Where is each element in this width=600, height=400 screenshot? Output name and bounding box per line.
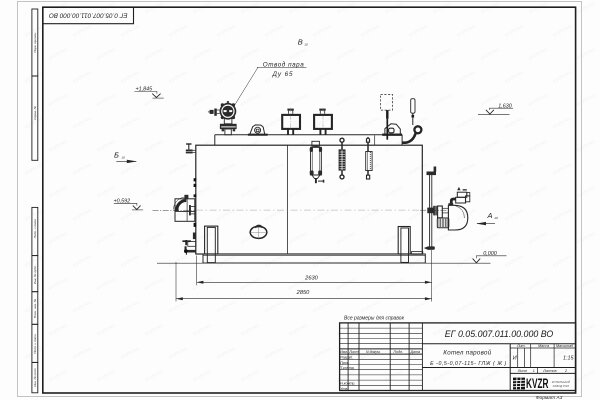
svg-text:KVZR.RU: KVZR.RU bbox=[288, 322, 309, 336]
svg-text:KVZR.RU: KVZR.RU bbox=[288, 46, 309, 60]
svg-text:KVZR.RU: KVZR.RU bbox=[528, 92, 549, 106]
svg-text:Масштаб: Масштаб bbox=[556, 344, 574, 348]
svg-text:1: 1 bbox=[533, 369, 535, 373]
svg-text:KVZR.RU: KVZR.RU bbox=[552, 115, 573, 129]
svg-text:KVZR.RU: KVZR.RU bbox=[96, 322, 117, 336]
svg-text:KVZR.RU: KVZR.RU bbox=[528, 276, 549, 290]
svg-text:KVZR.RU: KVZR.RU bbox=[312, 299, 333, 313]
svg-text:KVZR.RU: KVZR.RU bbox=[384, 368, 405, 382]
svg-text:KVZR.RU: KVZR.RU bbox=[96, 184, 117, 198]
svg-text:KVZR.RU: KVZR.RU bbox=[48, 368, 69, 382]
svg-text:KVZR.RU: KVZR.RU bbox=[240, 276, 261, 290]
svg-text:Лит.: Лит. bbox=[516, 344, 526, 348]
svg-text:KVZR.RU: KVZR.RU bbox=[288, 368, 309, 382]
svg-text:KVZR.RU: KVZR.RU bbox=[576, 368, 597, 382]
svg-text:KVZR.RU: KVZR.RU bbox=[192, 46, 213, 60]
svg-text:KVZR.RU: KVZR.RU bbox=[120, 253, 141, 267]
svg-text:KVZR.RU: KVZR.RU bbox=[264, 207, 285, 221]
svg-text:KVZR.RU: KVZR.RU bbox=[528, 230, 549, 244]
svg-text:KVZR.RU: KVZR.RU bbox=[408, 69, 429, 83]
svg-text:KVZR.RU: KVZR.RU bbox=[48, 184, 69, 198]
svg-text:KVZR.RU: KVZR.RU bbox=[504, 299, 525, 313]
svg-text:KVZR.RU: KVZR.RU bbox=[432, 138, 453, 152]
svg-text:Пров.: Пров. bbox=[340, 361, 349, 365]
svg-text:KVZR.RU: KVZR.RU bbox=[144, 92, 165, 106]
svg-text:KVZR.RU: KVZR.RU bbox=[216, 207, 237, 221]
svg-text:KVZR.RU: KVZR.RU bbox=[120, 69, 141, 83]
svg-text:KVZR.RU: KVZR.RU bbox=[552, 299, 573, 313]
svg-text:KVZR.RU: KVZR.RU bbox=[360, 299, 381, 313]
svg-text:Дата: Дата bbox=[410, 350, 420, 354]
svg-text:KVZR.RU: KVZR.RU bbox=[456, 253, 477, 267]
svg-text:2630: 2630 bbox=[304, 276, 318, 282]
svg-text:10: 10 bbox=[304, 42, 308, 46]
svg-text:+1,845: +1,845 bbox=[135, 86, 153, 92]
svg-text:KVZR.RU: KVZR.RU bbox=[528, 184, 549, 198]
svg-text:Лист: Лист bbox=[517, 369, 528, 373]
svg-text:KVZR.RU: KVZR.RU bbox=[552, 161, 573, 175]
svg-text:KVZR.RU: KVZR.RU bbox=[120, 345, 141, 359]
svg-text:KVZR.RU: KVZR.RU bbox=[504, 23, 525, 37]
svg-text:KVZR.RU: KVZR.RU bbox=[24, 69, 45, 83]
svg-text:KVZR.RU: KVZR.RU bbox=[144, 138, 165, 152]
svg-text:KVZR.RU: KVZR.RU bbox=[168, 161, 189, 175]
svg-text:KVZR.RU: KVZR.RU bbox=[480, 276, 501, 290]
svg-text:KVZR.RU: KVZR.RU bbox=[336, 92, 357, 106]
svg-text:KVZR.RU: KVZR.RU bbox=[408, 299, 429, 313]
svg-text:KVZR.RU: KVZR.RU bbox=[72, 115, 93, 129]
svg-text:KVZR.RU: KVZR.RU bbox=[408, 23, 429, 37]
svg-text:KVZR.RU: KVZR.RU bbox=[456, 299, 477, 313]
svg-text:KVZR.RU: KVZR.RU bbox=[384, 230, 405, 244]
svg-text:KVZR.RU: KVZR.RU bbox=[240, 368, 261, 382]
svg-text:KVZR.RU: KVZR.RU bbox=[336, 184, 357, 198]
svg-text:KVZR.RU: KVZR.RU bbox=[96, 276, 117, 290]
svg-text:KVZR.RU: KVZR.RU bbox=[360, 207, 381, 221]
svg-text:KVZR.RU: KVZR.RU bbox=[384, 46, 405, 60]
svg-text:KVZR.RU: KVZR.RU bbox=[192, 276, 213, 290]
svg-text:KVZR.RU: KVZR.RU bbox=[384, 92, 405, 106]
svg-text:KVZR.RU: KVZR.RU bbox=[456, 115, 477, 129]
svg-text:KVZR.RU: KVZR.RU bbox=[72, 299, 93, 313]
svg-text:KVZR.RU: KVZR.RU bbox=[144, 46, 165, 60]
svg-text:KVZR.RU: KVZR.RU bbox=[312, 69, 333, 83]
svg-text:KVZR.RU: KVZR.RU bbox=[120, 115, 141, 129]
svg-text:Отвод пара: Отвод пара bbox=[263, 61, 305, 69]
svg-text:KVZR.RU: KVZR.RU bbox=[312, 345, 333, 359]
svg-text:KVZR.RU: KVZR.RU bbox=[72, 253, 93, 267]
svg-text:Инв. № дубл.: Инв. № дубл. bbox=[33, 265, 37, 284]
svg-text:KVZR.RU: KVZR.RU bbox=[384, 276, 405, 290]
svg-text:KVZR.RU: KVZR.RU bbox=[72, 23, 93, 37]
svg-text:KVZR.RU: KVZR.RU bbox=[168, 23, 189, 37]
svg-text:KVZR.RU: KVZR.RU bbox=[552, 69, 573, 83]
svg-text:KVZR.RU: KVZR.RU bbox=[456, 207, 477, 221]
svg-text:KVZR.RU: KVZR.RU bbox=[240, 92, 261, 106]
svg-text:KVZR.RU: KVZR.RU bbox=[408, 207, 429, 221]
svg-text:KVZR.RU: KVZR.RU bbox=[168, 253, 189, 267]
svg-text:Т.контр.: Т.контр. bbox=[340, 366, 355, 370]
svg-text:KVZR.RU: KVZR.RU bbox=[216, 161, 237, 175]
svg-text:Подп. и дата: Подп. и дата bbox=[33, 334, 37, 354]
svg-text:Е -0,5-0,07-115- ГЛЖ ( Ж ): Е -0,5-0,07-115- ГЛЖ ( Ж ) bbox=[430, 361, 507, 367]
svg-text:KVZR.RU: KVZR.RU bbox=[456, 69, 477, 83]
svg-text:KVZR.RU: KVZR.RU bbox=[336, 230, 357, 244]
svg-text:KVZR.RU: KVZR.RU bbox=[576, 46, 597, 60]
svg-text:ЗАВОД РЭП: ЗАВОД РЭП bbox=[553, 384, 570, 388]
svg-text:KVZR.RU: KVZR.RU bbox=[240, 184, 261, 198]
svg-text:KVZR.RU: KVZR.RU bbox=[24, 161, 45, 175]
svg-text:KVZR.RU: KVZR.RU bbox=[360, 69, 381, 83]
svg-text:Н.контр.: Н.контр. bbox=[340, 382, 355, 386]
svg-text:KVZR.RU: KVZR.RU bbox=[96, 92, 117, 106]
svg-text:KVZR.RU: KVZR.RU bbox=[216, 299, 237, 313]
svg-text:KVZR.RU: KVZR.RU bbox=[576, 322, 597, 336]
svg-text:KVZR.RU: KVZR.RU bbox=[576, 92, 597, 106]
svg-text:KVZR.RU: KVZR.RU bbox=[72, 69, 93, 83]
svg-text:1:15: 1:15 bbox=[563, 356, 574, 362]
svg-text:KVZR.RU: KVZR.RU bbox=[144, 322, 165, 336]
svg-text:KVZR.RU: KVZR.RU bbox=[384, 322, 405, 336]
svg-text:KVZR.RU: KVZR.RU bbox=[192, 368, 213, 382]
svg-text:KVZR.RU: KVZR.RU bbox=[120, 299, 141, 313]
svg-text:KVZR.RU: KVZR.RU bbox=[312, 207, 333, 221]
svg-text:Изм.: Изм. bbox=[340, 350, 348, 354]
svg-text:Все размеры для справок: Все размеры для справок bbox=[344, 315, 405, 321]
svg-text:KVZR.RU: KVZR.RU bbox=[48, 230, 69, 244]
svg-text:Масса: Масса bbox=[538, 344, 549, 348]
svg-text:+0,592: +0,592 bbox=[113, 199, 130, 205]
svg-text:KVZR.RU: KVZR.RU bbox=[240, 46, 261, 60]
svg-text:KVZR.RU: KVZR.RU bbox=[504, 207, 525, 221]
svg-text:KVZR.RU: KVZR.RU bbox=[216, 23, 237, 37]
svg-text:KVZR.RU: KVZR.RU bbox=[552, 207, 573, 221]
svg-text:Подп.: Подп. bbox=[394, 350, 404, 354]
svg-text:KVZR.RU: KVZR.RU bbox=[264, 299, 285, 313]
svg-text:Лист: Лист bbox=[348, 350, 358, 354]
svg-text:KVZR.RU: KVZR.RU bbox=[96, 368, 117, 382]
svg-text:KVZR.RU: KVZR.RU bbox=[72, 207, 93, 221]
svg-text:В: В bbox=[298, 37, 303, 46]
svg-text:KVZR.RU: KVZR.RU bbox=[504, 253, 525, 267]
svg-text:KVZR.RU: KVZR.RU bbox=[408, 115, 429, 129]
svg-text:ЕГ 0.05.007.011.00.000 ВО: ЕГ 0.05.007.011.00.000 ВО bbox=[49, 12, 128, 19]
svg-text:Утв.: Утв. bbox=[340, 387, 348, 391]
svg-text:KVZR.RU: KVZR.RU bbox=[168, 299, 189, 313]
svg-text:KVZR.RU: KVZR.RU bbox=[432, 46, 453, 60]
svg-text:KVZR.RU: KVZR.RU bbox=[120, 161, 141, 175]
svg-text:KVZR.RU: KVZR.RU bbox=[168, 69, 189, 83]
svg-text:KVZR.RU: KVZR.RU bbox=[504, 161, 525, 175]
svg-text:ЕГ 0.05.007.011.00.000 ВО: ЕГ 0.05.007.011.00.000 ВО bbox=[445, 329, 554, 340]
svg-text:1,630: 1,630 bbox=[498, 103, 512, 109]
svg-text:KVZR.RU: KVZR.RU bbox=[264, 161, 285, 175]
svg-text:KVZR.RU: KVZR.RU bbox=[120, 207, 141, 221]
svg-text:Б: Б bbox=[114, 151, 119, 160]
svg-text:Справ. №: Справ. № bbox=[33, 105, 37, 120]
svg-text:KVZR.RU: KVZR.RU bbox=[384, 184, 405, 198]
svg-text:Инв. № подл.: Инв. № подл. bbox=[33, 367, 37, 386]
svg-text:KVZR.RU: KVZR.RU bbox=[480, 184, 501, 198]
svg-text:KVZR.RU: KVZR.RU bbox=[144, 368, 165, 382]
svg-text:KVZR.RU: KVZR.RU bbox=[552, 23, 573, 37]
svg-text:KVZR.RU: KVZR.RU bbox=[312, 115, 333, 129]
svg-text:KVZR.RU: KVZR.RU bbox=[576, 276, 597, 290]
svg-text:KVZR.RU: KVZR.RU bbox=[504, 115, 525, 129]
svg-text:KVZR.RU: KVZR.RU bbox=[48, 46, 69, 60]
svg-text:KVZR.RU: KVZR.RU bbox=[48, 92, 69, 106]
svg-text:Ду 65: Ду 65 bbox=[272, 71, 294, 78]
svg-text:Котел паровой: Котел паровой bbox=[443, 350, 492, 357]
svg-text:KVZR.RU: KVZR.RU bbox=[432, 230, 453, 244]
svg-text:KVZR.RU: KVZR.RU bbox=[456, 161, 477, 175]
svg-text:10: 10 bbox=[122, 156, 126, 160]
svg-text:KVZR.RU: KVZR.RU bbox=[360, 115, 381, 129]
svg-text:KVZR.RU: KVZR.RU bbox=[576, 230, 597, 244]
svg-text:KVZR.RU: KVZR.RU bbox=[480, 138, 501, 152]
svg-text:KVZR.RU: KVZR.RU bbox=[96, 230, 117, 244]
svg-text:KVZR.RU: KVZR.RU bbox=[264, 345, 285, 359]
svg-text:Формат А3: Формат А3 bbox=[536, 395, 563, 400]
svg-text:KVZR.RU: KVZR.RU bbox=[432, 184, 453, 198]
svg-text:N докум.: N докум. bbox=[366, 350, 381, 354]
svg-text:KVZR.RU: KVZR.RU bbox=[432, 368, 453, 382]
svg-text:KVZR.RU: KVZR.RU bbox=[120, 23, 141, 37]
svg-text:Перв. примен.: Перв. примен. bbox=[33, 32, 37, 53]
svg-text:KVZR.RU: KVZR.RU bbox=[312, 23, 333, 37]
svg-text:KVZR.RU: KVZR.RU bbox=[552, 253, 573, 267]
svg-text:KVZR.RU: KVZR.RU bbox=[456, 23, 477, 37]
svg-text:KVZR.RU: KVZR.RU bbox=[72, 345, 93, 359]
svg-text:KVZR.RU: KVZR.RU bbox=[576, 184, 597, 198]
svg-text:KVZR.RU: KVZR.RU bbox=[432, 92, 453, 106]
svg-text:KVZR.RU: KVZR.RU bbox=[216, 345, 237, 359]
svg-text:Разраб.: Разраб. bbox=[340, 356, 353, 360]
svg-text:KVZR.RU: KVZR.RU bbox=[504, 69, 525, 83]
svg-text:2: 2 bbox=[564, 369, 567, 373]
svg-text:KVZR.RU: KVZR.RU bbox=[168, 345, 189, 359]
svg-text:KVZR.RU: KVZR.RU bbox=[216, 69, 237, 83]
svg-text:Подп. и дата: Подп. и дата bbox=[33, 219, 37, 239]
svg-text:KVZR.RU: KVZR.RU bbox=[264, 23, 285, 37]
svg-text:KVZR.RU: KVZR.RU bbox=[48, 276, 69, 290]
svg-text:KVZR.RU: KVZR.RU bbox=[240, 322, 261, 336]
svg-text:KVZR.RU: KVZR.RU bbox=[144, 276, 165, 290]
svg-text:И: И bbox=[513, 355, 517, 361]
svg-text:KVZR: KVZR bbox=[526, 376, 549, 391]
svg-text:KVZR.RU: KVZR.RU bbox=[336, 46, 357, 60]
svg-text:KVZR.RU: KVZR.RU bbox=[288, 92, 309, 106]
svg-text:KVZR.RU: KVZR.RU bbox=[192, 92, 213, 106]
svg-text:20: 20 bbox=[494, 216, 499, 220]
svg-text:KVZR.RU: KVZR.RU bbox=[312, 161, 333, 175]
svg-text:KVZR.RU: KVZR.RU bbox=[72, 161, 93, 175]
svg-text:Листов: Листов bbox=[542, 369, 557, 373]
svg-text:KVZR.RU: KVZR.RU bbox=[48, 322, 69, 336]
svg-text:KVZR.RU: KVZR.RU bbox=[576, 138, 597, 152]
svg-text:KVZR.RU: KVZR.RU bbox=[480, 368, 501, 382]
svg-text:Взам. инв. №: Взам. инв. № bbox=[33, 298, 37, 318]
svg-text:KVZR.RU: KVZR.RU bbox=[96, 46, 117, 60]
svg-text:KVZR.RU: KVZR.RU bbox=[144, 184, 165, 198]
svg-text:KVZR.RU: KVZR.RU bbox=[480, 46, 501, 60]
svg-text:KVZR.RU: KVZR.RU bbox=[408, 161, 429, 175]
svg-text:KVZR.RU: KVZR.RU bbox=[288, 184, 309, 198]
svg-text:KVZR.RU: KVZR.RU bbox=[48, 138, 69, 152]
svg-text:KVZR.RU: KVZR.RU bbox=[528, 46, 549, 60]
svg-text:KVZR.RU: KVZR.RU bbox=[336, 276, 357, 290]
svg-text:0,000: 0,000 bbox=[483, 251, 497, 257]
svg-text:KVZR.RU: KVZR.RU bbox=[528, 138, 549, 152]
svg-text:KVZR.RU: KVZR.RU bbox=[576, 0, 597, 14]
svg-text:KVZR.RU: KVZR.RU bbox=[480, 230, 501, 244]
svg-text:KVZR.RU: KVZR.RU bbox=[168, 115, 189, 129]
svg-text:2850: 2850 bbox=[296, 290, 310, 296]
svg-text:А: А bbox=[486, 211, 492, 220]
svg-text:KVZR.RU: KVZR.RU bbox=[192, 322, 213, 336]
svg-text:KVZR.RU: KVZR.RU bbox=[360, 23, 381, 37]
svg-text:KVZR.RU: KVZR.RU bbox=[288, 230, 309, 244]
svg-text:KVZR.RU: KVZR.RU bbox=[144, 230, 165, 244]
svg-text:KVZR.RU: KVZR.RU bbox=[432, 276, 453, 290]
